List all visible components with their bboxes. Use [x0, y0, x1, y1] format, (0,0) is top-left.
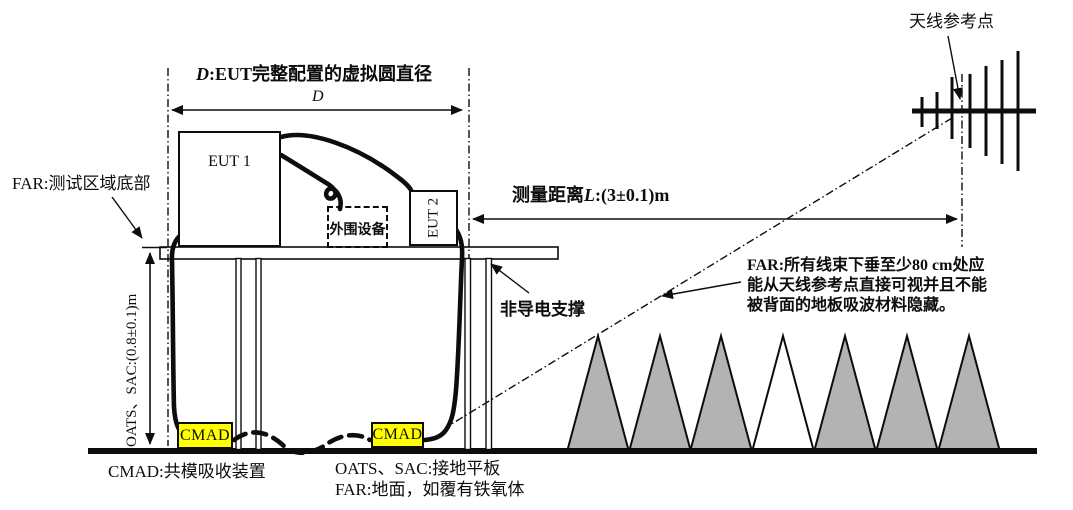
table-leg — [486, 259, 492, 450]
table-leg — [256, 259, 261, 450]
cmad-box-left: CMAD — [177, 422, 233, 449]
eut1-label: EUT 1 — [180, 153, 279, 171]
peripheral-box: 外围设备 — [327, 206, 388, 248]
far-note-line2: 能从天线参考点直接可视并且不能 — [747, 276, 987, 296]
emc-test-setup-diagram: EUT 1 EUT 2 外围设备 CMAD CMAD 天线参考点 D:EUT完整… — [0, 0, 1073, 510]
absorber-cone-unfilled — [753, 336, 814, 450]
eut1-box: EUT 1 — [178, 131, 281, 247]
d-title-var: D — [196, 64, 209, 84]
log-periodic-antenna — [912, 51, 1036, 171]
absorber-cone — [630, 336, 691, 450]
measure-distance-label: 测量距离L:(3±0.1)m — [512, 185, 669, 206]
far-note-line1: FAR:所有线束下垂至少80 cm处应 — [747, 256, 987, 276]
non-conductive-support-label: 非导电支撑 — [500, 300, 585, 320]
absorber-cone — [568, 336, 629, 450]
table-leg — [236, 259, 241, 450]
measure-prefix: 测量距离 — [512, 185, 584, 205]
eut2-label: EUT 2 — [425, 198, 442, 238]
far-note-line3: 被背面的地板吸波材料隐藏。 — [747, 296, 987, 316]
far-note: FAR:所有线束下垂至少80 cm处应 能从天线参考点直接可视并且不能 被背面的… — [747, 256, 987, 316]
cmad-right-label: CMAD — [373, 426, 423, 444]
cmad-left-label: CMAD — [180, 427, 230, 445]
table-leg — [465, 259, 471, 450]
antenna-ref-label: 天线参考点 — [909, 12, 994, 32]
cable-eut1-to-peripheral — [281, 155, 328, 184]
absorber-cone — [939, 336, 1000, 450]
peripheral-label: 外围设备 — [330, 223, 386, 239]
cable-eut1-to-eut2 — [281, 135, 411, 190]
d-title: D:EUT完整配置的虚拟圆直径 — [196, 64, 432, 85]
caption-oats-sac: OATS、SAC:接地平板 — [335, 459, 500, 479]
diagram-canvas — [0, 0, 1073, 510]
absorber-cones — [568, 336, 1000, 450]
absorber-cone — [877, 336, 938, 450]
d-dim-label: D — [312, 88, 324, 106]
cmad-box-right: CMAD — [371, 422, 424, 448]
table-top — [160, 247, 558, 259]
measure-var: L — [584, 185, 595, 205]
antenna-ref-arrow — [948, 36, 960, 99]
absorber-cone — [691, 336, 752, 450]
non-conductive-support-arrow — [491, 264, 529, 293]
far-test-area-arrow — [112, 197, 142, 238]
measure-suffix: :(3±0.1)m — [595, 185, 669, 205]
far-note-arrow — [662, 282, 741, 296]
caption-far-ground: FAR:地面，如覆有铁氧体 — [335, 480, 525, 500]
absorber-cone — [815, 336, 876, 450]
eut2-box: EUT 2 — [409, 190, 458, 246]
d-title-rest: :EUT完整配置的虚拟圆直径 — [209, 64, 432, 84]
far-test-area-label: FAR:测试区域底部 — [12, 174, 151, 194]
caption-cmad: CMAD:共模吸收装置 — [108, 462, 266, 482]
oats-sac-height-label: OATS、SAC:(0.8±0.1)m — [124, 294, 141, 447]
